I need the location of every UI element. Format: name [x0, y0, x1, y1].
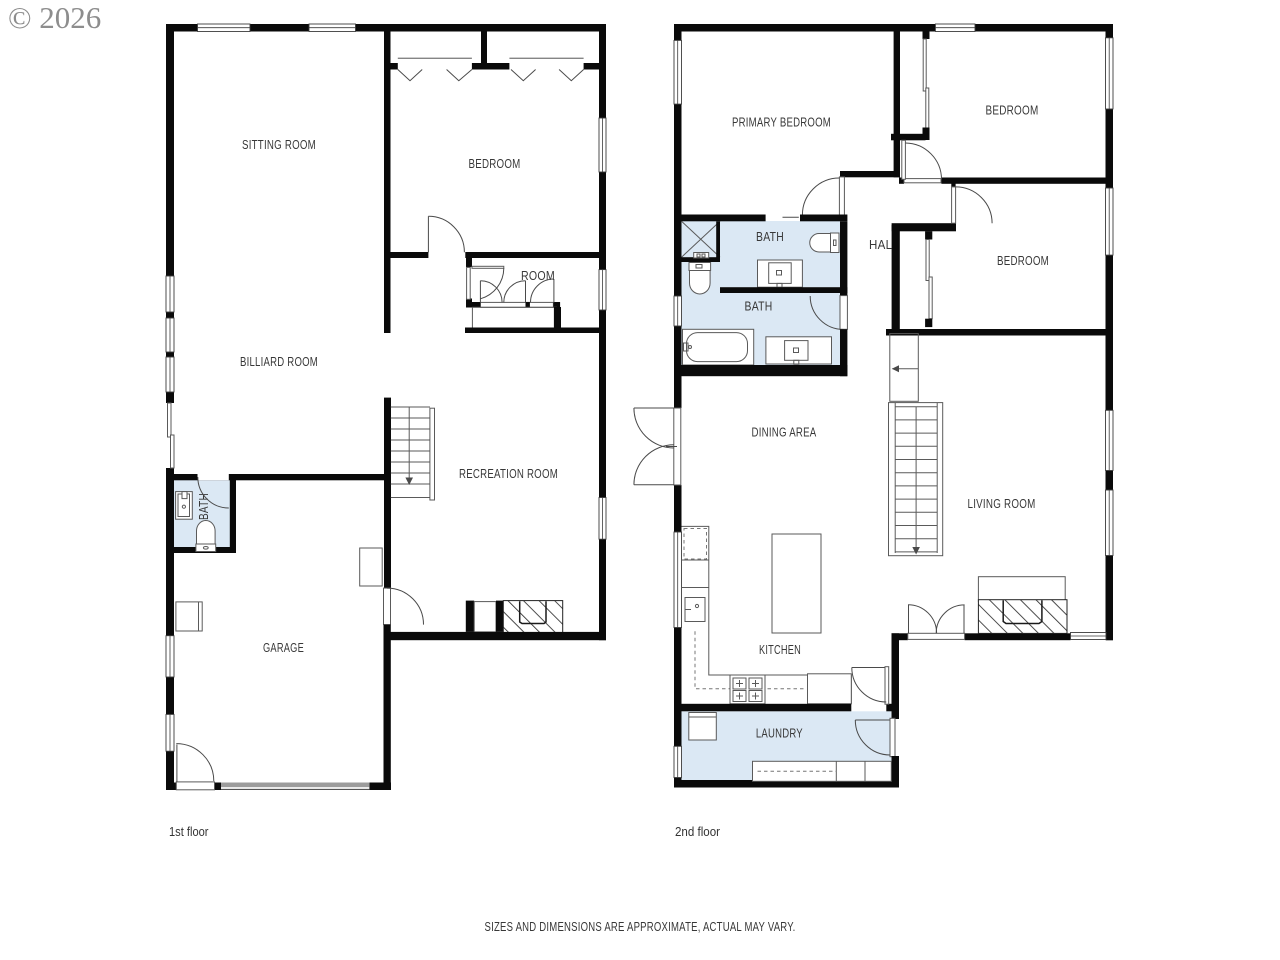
- svg-text:2nd floor: 2nd floor: [675, 824, 721, 839]
- svg-text:KITCHEN: KITCHEN: [759, 643, 801, 657]
- svg-text:BATH: BATH: [745, 300, 773, 314]
- svg-text:BATH: BATH: [756, 230, 784, 244]
- svg-text:ROOM: ROOM: [521, 269, 555, 283]
- svg-text:LAUNDRY: LAUNDRY: [756, 727, 803, 741]
- svg-text:GARAGE: GARAGE: [263, 641, 304, 655]
- svg-text:BEDROOM: BEDROOM: [986, 104, 1039, 118]
- svg-text:RECREATION ROOM: RECREATION ROOM: [459, 467, 558, 481]
- svg-text:© 2026: © 2026: [8, 0, 101, 35]
- svg-text:SIZES AND DIMENSIONS ARE APPRO: SIZES AND DIMENSIONS ARE APPROXIMATE, AC…: [485, 920, 796, 934]
- svg-text:PRIMARY BEDROOM: PRIMARY BEDROOM: [732, 115, 831, 129]
- svg-text:BEDROOM: BEDROOM: [997, 254, 1049, 268]
- svg-text:DINING AREA: DINING AREA: [752, 425, 817, 439]
- svg-text:BILLIARD ROOM: BILLIARD ROOM: [240, 355, 318, 369]
- svg-text:SITTING ROOM: SITTING ROOM: [242, 138, 316, 152]
- svg-text:BEDROOM: BEDROOM: [469, 157, 521, 171]
- svg-text:LIVING ROOM: LIVING ROOM: [968, 497, 1036, 511]
- svg-text:1st floor: 1st floor: [169, 824, 209, 839]
- svg-text:BATH: BATH: [197, 493, 211, 520]
